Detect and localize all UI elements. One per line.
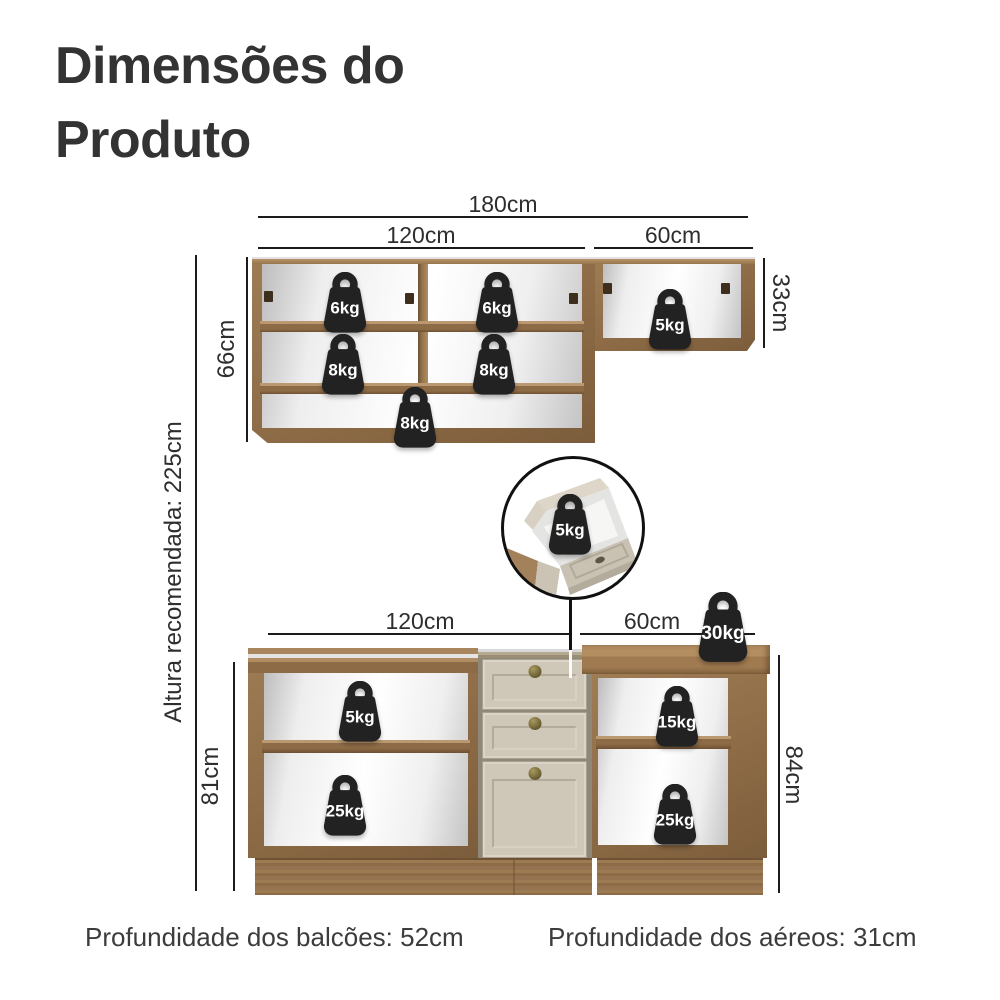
upper-total-width-label: 180cm xyxy=(455,191,551,218)
recommended-height-label: Altura recomendada: 225cm xyxy=(160,407,186,737)
weight-badge: 25kg xyxy=(648,784,702,850)
upper-left-width-label: 120cm xyxy=(373,222,469,249)
plinth-seam xyxy=(513,860,515,895)
page-title-line2: Produto xyxy=(55,104,404,178)
weight-label: 15kg xyxy=(650,713,704,733)
lower-cabinet-left-top-frame xyxy=(248,648,478,673)
lower-right-height-label: 84cm xyxy=(781,720,807,830)
upper-cabinet-right-top-edge xyxy=(595,257,755,264)
aerials-depth-label: Profundidade dos aéreos: 31cm xyxy=(548,922,917,953)
weight-label: 25kg xyxy=(318,802,372,822)
upper-right-height-label: 33cm xyxy=(768,248,794,358)
hinge-icon xyxy=(569,293,578,304)
drawer-knob xyxy=(528,767,541,780)
drawer-knob xyxy=(528,717,541,730)
weight-label: 5kg xyxy=(333,708,387,728)
upper-cabinet-left-top-edge xyxy=(252,257,595,264)
drawer-unit-top-edge xyxy=(478,649,592,658)
lower-right-width-label: 60cm xyxy=(604,608,700,635)
product-dimensions-diagram: Dimensões do Produto 180cm 120cm 60cm 66… xyxy=(0,0,1000,1000)
drawer-front-2 xyxy=(482,712,587,759)
upper-left-height-label: 66cm xyxy=(213,294,239,404)
weight-label: 6kg xyxy=(318,299,372,319)
weight-badge: 5kg xyxy=(543,494,597,560)
drawer-unit xyxy=(478,649,592,858)
weight-label: 5kg xyxy=(643,316,697,336)
drawer-front-3-panel xyxy=(492,779,577,848)
weight-label: 25kg xyxy=(648,811,702,831)
drawer-knob xyxy=(528,665,541,678)
counters-depth-label: Profundidade dos balcões: 52cm xyxy=(85,922,464,953)
upper-total-width-line xyxy=(258,216,748,218)
weight-badge: 6kg xyxy=(470,272,524,338)
hinge-icon xyxy=(603,283,612,294)
weight-badge: 30kg xyxy=(691,592,755,668)
upper-right-height-line xyxy=(763,258,765,348)
page-title-line1: Dimensões do xyxy=(55,30,404,104)
lower-left-height-label: 81cm xyxy=(197,721,223,831)
lower-left-height-line xyxy=(233,662,235,891)
hinge-icon xyxy=(721,283,730,294)
hinge-icon xyxy=(264,291,273,302)
weight-label: 5kg xyxy=(543,521,597,541)
weight-badge: 5kg xyxy=(643,289,697,355)
upper-left-height-line xyxy=(246,257,248,442)
lower-left-plinth xyxy=(255,858,592,895)
drawer-front-1-panel xyxy=(492,674,577,701)
weight-label: 8kg xyxy=(467,361,521,381)
page-title: Dimensões do Produto xyxy=(55,30,404,178)
weight-label: 30kg xyxy=(691,623,755,645)
drawer-front-3 xyxy=(482,761,587,858)
detail-connector-line-light xyxy=(569,650,572,678)
upper-right-width-line xyxy=(594,247,753,249)
lower-left-width-label: 120cm xyxy=(372,608,468,635)
weight-badge: 8kg xyxy=(388,387,442,453)
hinge-icon xyxy=(405,293,414,304)
detail-connector-line xyxy=(569,598,572,650)
weight-label: 6kg xyxy=(470,299,524,319)
upper-left-width-line xyxy=(258,247,585,249)
weight-badge: 8kg xyxy=(467,334,521,400)
weight-badge: 6kg xyxy=(318,272,372,338)
weight-badge: 15kg xyxy=(650,686,704,752)
weight-label: 8kg xyxy=(388,414,442,434)
lower-right-plinth xyxy=(597,858,763,895)
weight-badge: 25kg xyxy=(318,775,372,841)
upper-right-width-label: 60cm xyxy=(625,222,721,249)
weight-badge: 5kg xyxy=(333,681,387,747)
lower-left-width-line xyxy=(268,633,570,635)
upper-cabinet-left-shelf-1 xyxy=(260,321,584,332)
weight-badge: 8kg xyxy=(316,334,370,400)
weight-label: 8kg xyxy=(316,361,370,381)
